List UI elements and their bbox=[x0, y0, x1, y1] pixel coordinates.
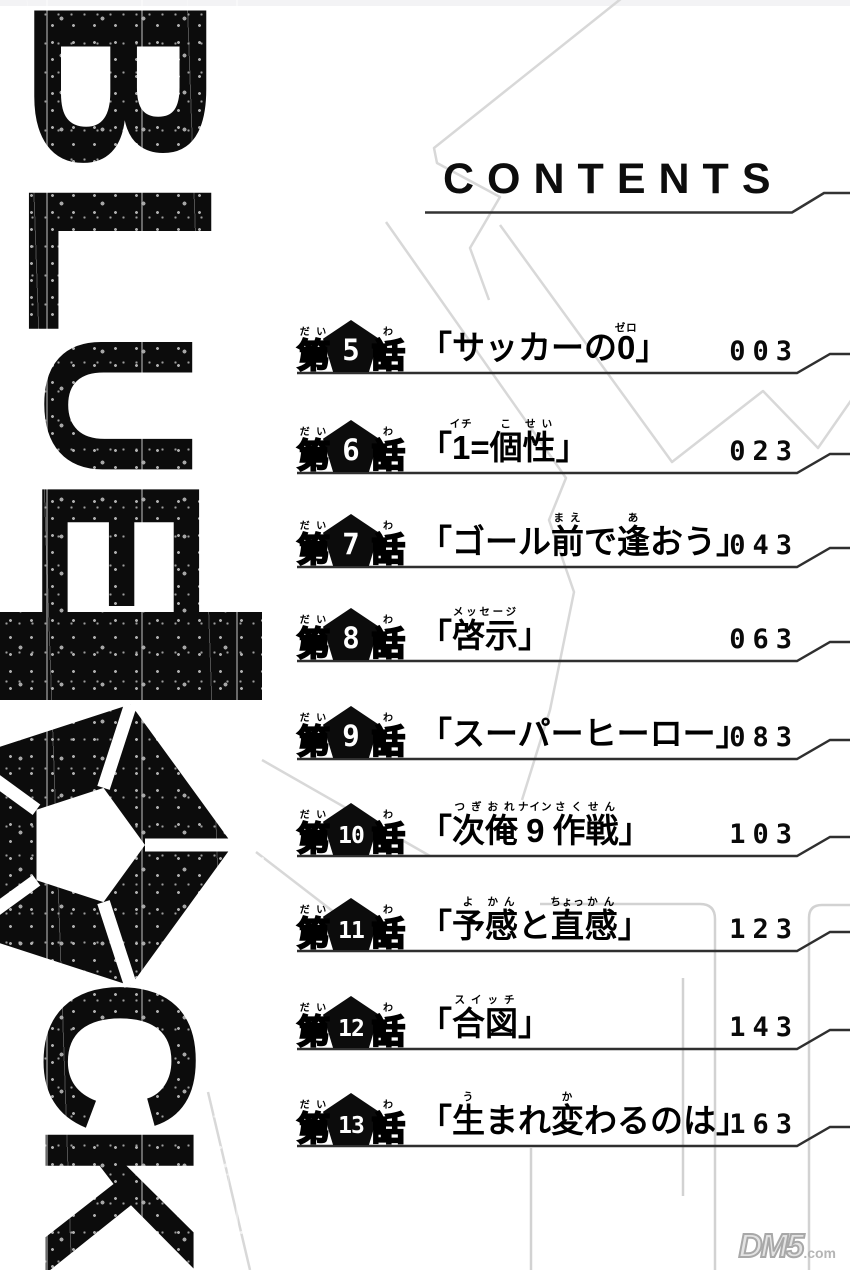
chapter-number: 9 bbox=[342, 722, 359, 751]
chapter-suffix-kanji: 話わ bbox=[372, 905, 405, 950]
logo-letter-u: U bbox=[0, 330, 272, 482]
chapter-row: 第だい 13 話わ 「生うまれ変かわるのは」 163 bbox=[283, 1069, 850, 1147]
chapter-page-number: 143 bbox=[729, 1012, 799, 1043]
chapter-number: 12 bbox=[338, 1018, 364, 1041]
chapter-row: 第だい 10 話わ 「次つぎ俺おれ9ナイン作さく戦せん」 103 bbox=[283, 779, 850, 857]
chapter-number: 5 bbox=[342, 336, 359, 365]
logo-letter-c: C bbox=[0, 982, 272, 1130]
chapter-suffix-kanji: 話わ bbox=[372, 1003, 405, 1048]
page-title: CONTENTS bbox=[443, 155, 784, 204]
chapter-page-number: 103 bbox=[729, 819, 799, 850]
chapter-number-pentagon-icon: 9 bbox=[323, 706, 379, 758]
logo-letter-l: L bbox=[0, 180, 272, 332]
chapter-row: 第だい 5 話わ 「サッカーの0ゼロ」 003 bbox=[283, 296, 850, 374]
chapter-number: 8 bbox=[342, 624, 359, 653]
chapter-number: 6 bbox=[342, 436, 359, 465]
chapter-row: 第だい 8 話わ 「啓示メッセージ」 063 bbox=[283, 584, 850, 662]
chapter-prefix-kanji: 第だい bbox=[297, 810, 330, 855]
chapter-number-pentagon-icon: 12 bbox=[323, 996, 379, 1048]
logo-letter-k: K bbox=[0, 1122, 272, 1270]
chapter-row: 第だい 12 話わ 「合図スイッチ」 143 bbox=[283, 972, 850, 1050]
chapter-page-number: 023 bbox=[729, 436, 799, 467]
chapter-row: 第だい 9 話わ 「スーパーヒーロー」 083 bbox=[283, 682, 850, 760]
chapter-number: 7 bbox=[342, 530, 359, 559]
chapter-marker: 第だい 6 話わ bbox=[297, 420, 405, 472]
chapter-number-pentagon-icon: 10 bbox=[323, 803, 379, 855]
chapter-suffix-kanji: 話わ bbox=[372, 810, 405, 855]
chapter-marker: 第だい 9 話わ bbox=[297, 706, 405, 758]
chapter-marker: 第だい 8 話わ bbox=[297, 608, 405, 660]
watermark-brand: DM5 bbox=[739, 1229, 803, 1262]
chapter-number-pentagon-icon: 13 bbox=[323, 1093, 379, 1145]
chapter-page-number: 163 bbox=[729, 1109, 799, 1140]
chapter-suffix-kanji: 話わ bbox=[372, 521, 405, 566]
chapter-marker: 第だい 10 話わ bbox=[297, 803, 405, 855]
chapter-number-pentagon-icon: 11 bbox=[323, 898, 379, 950]
chapter-number-pentagon-icon: 5 bbox=[323, 320, 379, 372]
logo-letter-b: B bbox=[0, 0, 272, 183]
chapter-prefix-kanji: 第だい bbox=[297, 1100, 330, 1145]
chapter-number-pentagon-icon: 8 bbox=[323, 608, 379, 660]
chapter-suffix-kanji: 話わ bbox=[372, 615, 405, 660]
chapter-page-number: 043 bbox=[729, 530, 799, 561]
chapter-page-number: 063 bbox=[729, 624, 799, 655]
chapter-marker: 第だい 11 話わ bbox=[297, 898, 405, 950]
blue-lock-logo: BLUECK bbox=[0, 0, 272, 1270]
chapter-suffix-kanji: 話わ bbox=[372, 713, 405, 758]
chapter-page-number: 083 bbox=[729, 722, 799, 753]
chapter-marker: 第だい 12 話わ bbox=[297, 996, 405, 1048]
chapter-prefix-kanji: 第だい bbox=[297, 327, 330, 372]
dm5-watermark: DM5 .com bbox=[739, 1229, 836, 1262]
logo-letter-e: E bbox=[0, 478, 272, 622]
chapter-number: 13 bbox=[338, 1115, 364, 1138]
chapter-prefix-kanji: 第だい bbox=[297, 713, 330, 758]
chapter-prefix-kanji: 第だい bbox=[297, 905, 330, 950]
chapter-page-number: 123 bbox=[729, 914, 799, 945]
chapter-page-number: 003 bbox=[729, 336, 799, 367]
chapter-suffix-kanji: 話わ bbox=[372, 427, 405, 472]
chapter-prefix-kanji: 第だい bbox=[297, 427, 330, 472]
chapter-number: 10 bbox=[338, 825, 364, 848]
watermark-suffix: .com bbox=[803, 1246, 836, 1260]
chapter-row: 第だい 11 話わ 「予よ感かんと直ちょっ感かん」 123 bbox=[283, 874, 850, 952]
chapter-row: 第だい 6 話わ 「1イチ=個こ性せい」 023 bbox=[283, 396, 850, 474]
chapter-prefix-kanji: 第だい bbox=[297, 1003, 330, 1048]
chapter-number-pentagon-icon: 6 bbox=[323, 420, 379, 472]
chapter-prefix-kanji: 第だい bbox=[297, 615, 330, 660]
chapter-suffix-kanji: 話わ bbox=[372, 327, 405, 372]
chapter-marker: 第だい 7 話わ bbox=[297, 514, 405, 566]
chapter-marker: 第だい 13 話わ bbox=[297, 1093, 405, 1145]
chapter-prefix-kanji: 第だい bbox=[297, 521, 330, 566]
chapter-number: 11 bbox=[338, 920, 364, 943]
chapter-suffix-kanji: 話わ bbox=[372, 1100, 405, 1145]
chapter-row: 第だい 7 話わ 「ゴール前まえで逢あおう」 043 bbox=[283, 490, 850, 568]
logo-letter-o-pentagon-ball bbox=[0, 695, 235, 995]
chapter-number-pentagon-icon: 7 bbox=[323, 514, 379, 566]
chapter-marker: 第だい 5 話わ bbox=[297, 320, 405, 372]
